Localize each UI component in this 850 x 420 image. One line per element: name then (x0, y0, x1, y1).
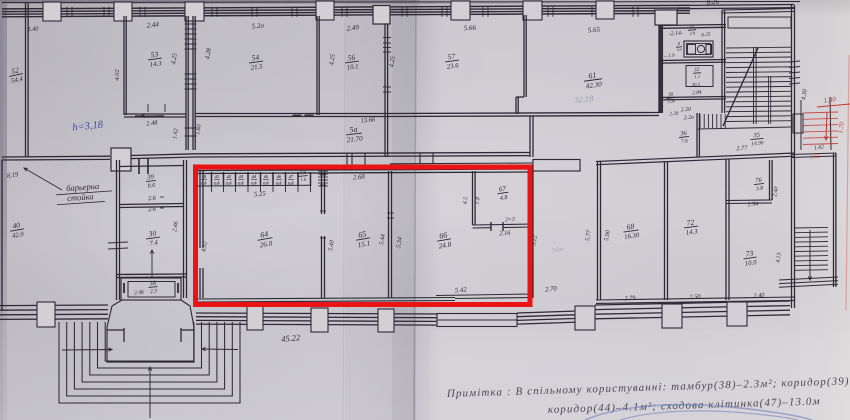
svg-text:5.2o: 5.2o (251, 21, 264, 30)
svg-text:2.16: 2.16 (499, 230, 511, 238)
svg-text:2.40: 2.40 (753, 292, 765, 300)
svg-text:5a: 5a (349, 125, 358, 135)
svg-text:56: 56 (347, 53, 356, 63)
svg-text:2.48: 2.48 (134, 289, 144, 297)
svg-text:32,18: 32,18 (573, 93, 595, 105)
svg-text:1.8: 1.8 (474, 197, 481, 205)
svg-text:2.6: 2.6 (148, 206, 157, 214)
svg-text:2.84: 2.84 (692, 90, 702, 97)
svg-text:73: 73 (745, 249, 754, 259)
svg-text:7.6: 7.6 (681, 138, 689, 145)
svg-text:16∞: 16∞ (551, 245, 564, 255)
svg-text:53: 53 (150, 50, 159, 60)
svg-text:8.40: 8.40 (27, 26, 40, 34)
svg-text:3.30: 3.30 (667, 98, 676, 104)
svg-text:5.25: 5.25 (254, 190, 267, 198)
svg-text:7.4: 7.4 (149, 239, 159, 247)
svg-text:6.25: 6.25 (701, 32, 711, 39)
svg-text:57: 57 (447, 52, 456, 62)
svg-text:3.8: 3.8 (755, 186, 764, 193)
svg-text:4.5: 4.5 (461, 196, 469, 204)
svg-text:2.20: 2.20 (681, 107, 692, 114)
svg-text:2.54: 2.54 (747, 201, 758, 209)
svg-text:2.3: 2.3 (150, 289, 158, 296)
svg-text:4.02: 4.02 (114, 69, 121, 81)
svg-text:35: 35 (752, 132, 760, 140)
svg-text:1.1: 1.1 (694, 74, 700, 79)
svg-text:2.20: 2.20 (669, 111, 679, 118)
svg-text:2=3: 2=3 (505, 217, 515, 224)
svg-text:41: 41 (213, 174, 219, 179)
svg-text:2.68: 2.68 (353, 173, 366, 181)
svg-text:45.22: 45.22 (281, 332, 302, 344)
svg-text:2.77: 2.77 (736, 145, 748, 153)
svg-text:30.5: 30.5 (691, 83, 701, 89)
svg-text:8.26: 8.26 (707, 0, 720, 6)
svg-text:2.70: 2.70 (545, 285, 558, 293)
svg-text:↔1.9: ↔1.9 (663, 54, 675, 60)
svg-text:38: 38 (148, 280, 157, 288)
svg-text:13.66: 13.66 (360, 116, 376, 124)
svg-text:2.79: 2.79 (624, 295, 636, 303)
svg-text:33: 33 (689, 24, 695, 30)
svg-text:2.50: 2.50 (689, 293, 701, 301)
svg-text:2.6: 2.6 (148, 195, 157, 203)
svg-text:-2.14-: -2.14- (669, 30, 684, 38)
svg-text:2.44: 2.44 (146, 20, 160, 29)
svg-text:0.9: 0.9 (677, 48, 682, 52)
svg-text:14.90: 14.90 (751, 139, 764, 147)
svg-text:8.6: 8.6 (148, 183, 156, 190)
svg-text:32: 32 (693, 67, 700, 74)
svg-text:2.2o: 2.2o (684, 115, 695, 122)
svg-text:5.42: 5.42 (455, 286, 468, 294)
svg-text:2.49: 2.49 (346, 23, 360, 32)
svg-text:68: 68 (626, 222, 635, 232)
svg-text:5.65: 5.65 (587, 26, 600, 35)
svg-text:30: 30 (147, 229, 157, 239)
svg-text:54: 54 (251, 53, 260, 63)
svg-text:1.42: 1.42 (171, 128, 179, 139)
svg-text:72: 72 (686, 218, 695, 228)
svg-text:5.66: 5.66 (463, 24, 476, 33)
svg-text:2.48: 2.48 (146, 119, 159, 127)
svg-text:61: 61 (588, 71, 597, 81)
